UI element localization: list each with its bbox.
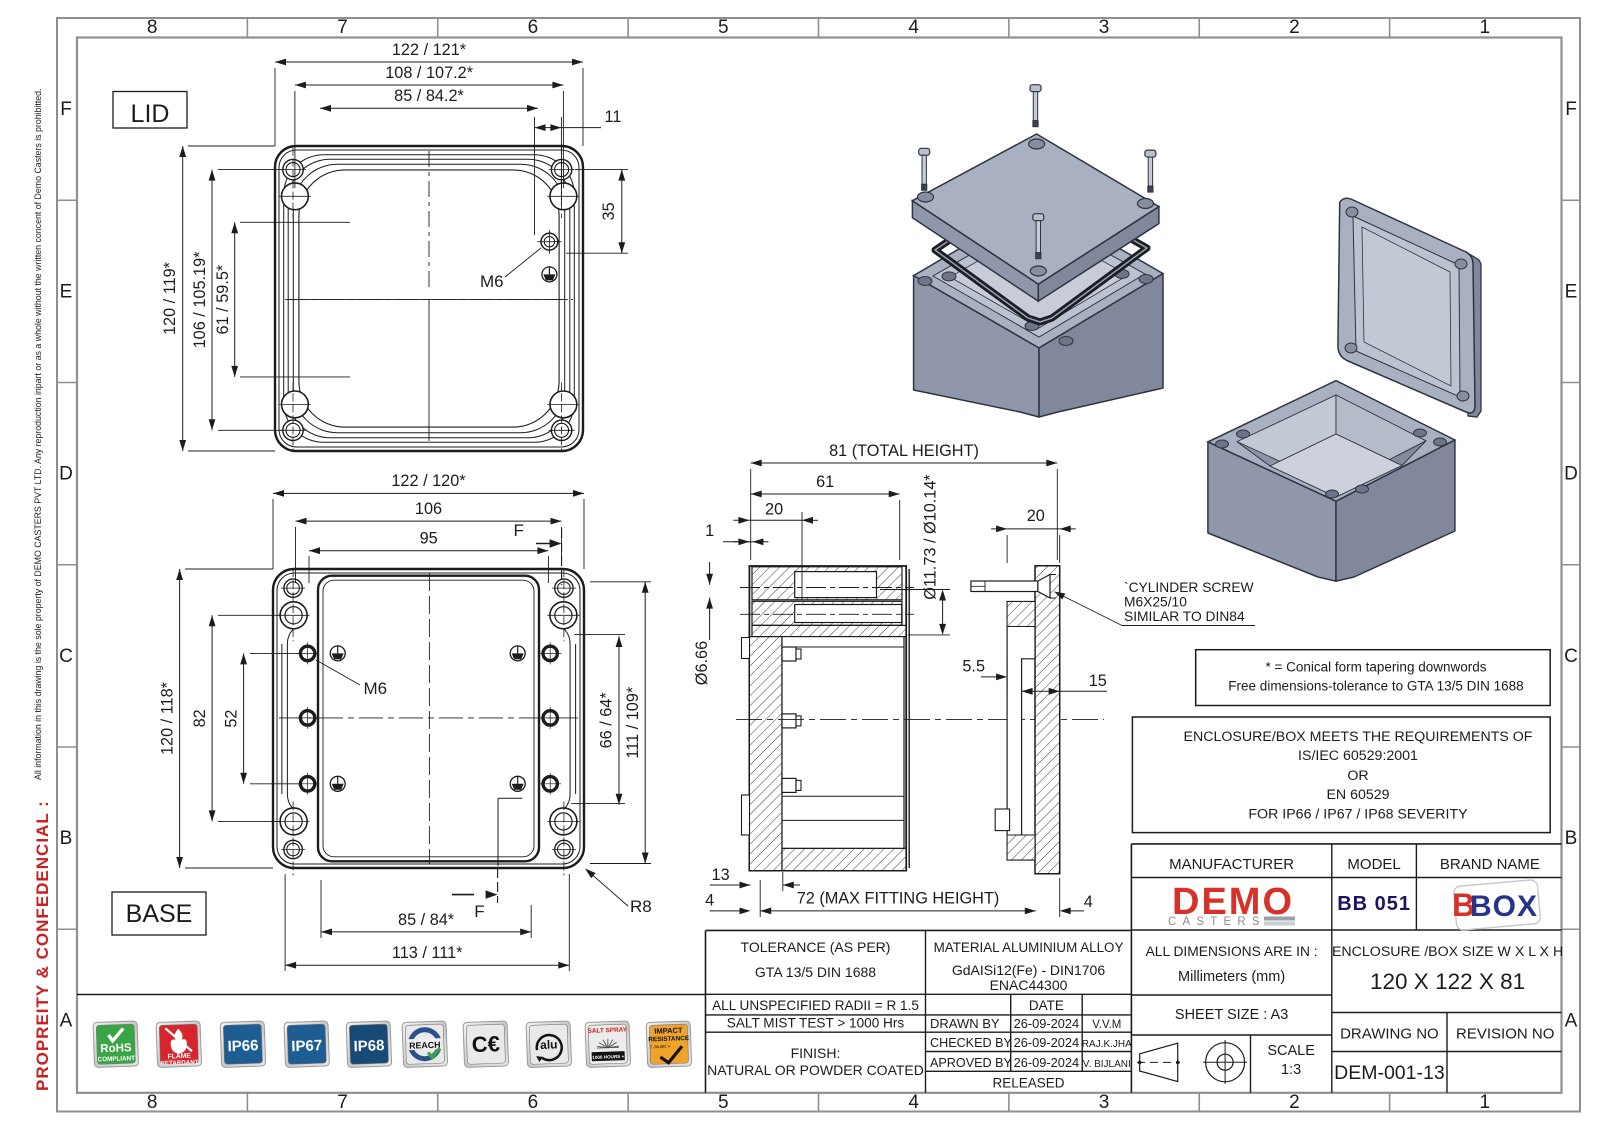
svg-text:CHECKED BY: CHECKED BY: [930, 1036, 1012, 1050]
svg-text:BASE: BASE: [126, 900, 193, 928]
svg-text:GTA 13/5 DIN 1688: GTA 13/5 DIN 1688: [755, 964, 876, 980]
svg-text:4: 4: [908, 17, 919, 38]
svg-text:7: 7: [337, 17, 348, 38]
svg-text:C: C: [59, 646, 73, 667]
svg-text:F: F: [1565, 99, 1577, 120]
svg-text:OR: OR: [1347, 768, 1368, 784]
svg-text:61: 61: [816, 473, 834, 491]
svg-text:E: E: [1565, 281, 1578, 302]
svg-text:4: 4: [705, 892, 714, 910]
svg-text:REVISION NO: REVISION NO: [1456, 1026, 1554, 1043]
svg-text:EN 60529: EN 60529: [1326, 787, 1389, 803]
svg-text:SCALE: SCALE: [1267, 1043, 1315, 1059]
svg-text:ALL UNSPECIFIED RADII = R 1.5: ALL UNSPECIFIED RADII = R 1.5: [712, 998, 919, 1013]
svg-text:6: 6: [528, 1092, 539, 1113]
svg-text:8: 8: [147, 17, 158, 38]
svg-text:DEM-001-13: DEM-001-13: [1334, 1062, 1445, 1084]
svg-text:V. BIJLANI: V. BIJLANI: [1083, 1059, 1131, 1070]
svg-text:3: 3: [1099, 17, 1110, 38]
svg-text:5: 5: [718, 17, 729, 38]
svg-text:IS/IEC 60529:2001: IS/IEC 60529:2001: [1298, 748, 1418, 764]
svg-text:Millimeters (mm): Millimeters (mm): [1178, 969, 1285, 985]
svg-text:7 Joules +: 7 Joules +: [650, 1044, 671, 1050]
svg-text:F: F: [474, 902, 484, 921]
svg-text:SHEET SIZE : A3: SHEET SIZE : A3: [1175, 1007, 1288, 1023]
svg-text:DATE: DATE: [1029, 998, 1064, 1013]
svg-text:8: 8: [147, 1092, 158, 1113]
svg-text:6: 6: [528, 17, 539, 38]
svg-text:RESISTANCE: RESISTANCE: [648, 1035, 690, 1043]
svg-text:4: 4: [1084, 893, 1093, 911]
svg-text:IMPACT: IMPACT: [654, 1026, 683, 1036]
svg-text:RETARDANT: RETARDANT: [160, 1059, 198, 1067]
svg-text:35: 35: [600, 202, 618, 220]
svg-text:Ø6.66: Ø6.66: [693, 641, 711, 685]
svg-text:120 X 122 X 81: 120 X 122 X 81: [1370, 969, 1525, 994]
svg-text:ENCLOSURE/BOX MEETS THE REQUIR: ENCLOSURE/BOX MEETS THE REQUIREMENTS OF: [1184, 729, 1533, 745]
svg-text:M6X25/10: M6X25/10: [1124, 595, 1187, 610]
svg-text:LID: LID: [131, 100, 170, 128]
svg-text:B: B: [60, 828, 73, 849]
svg-text:82: 82: [191, 709, 209, 727]
svg-text:66 / 64*: 66 / 64*: [598, 692, 616, 749]
svg-text:RELEASED: RELEASED: [992, 1076, 1064, 1091]
svg-text:2: 2: [1289, 17, 1300, 38]
svg-text:A: A: [60, 1010, 73, 1031]
svg-text:RAJ.K.JHA: RAJ.K.JHA: [1082, 1039, 1132, 1050]
svg-text:FINISH:: FINISH:: [791, 1045, 841, 1061]
svg-text:ENAC44300: ENAC44300: [990, 977, 1068, 993]
svg-text:ENCLOSURE /BOX SIZE W X L X H: ENCLOSURE /BOX SIZE W X L X H: [1332, 944, 1563, 960]
svg-text:122 / 121*: 122 / 121*: [392, 41, 467, 59]
svg-text:1: 1: [1480, 17, 1491, 38]
svg-text:NATURAL OR POWDER COATED: NATURAL OR POWDER COATED: [707, 1062, 924, 1078]
svg-text:C€: C€: [471, 1031, 500, 1057]
svg-text:1: 1: [705, 522, 714, 540]
svg-text:MATERIAL ALUMINIUM ALLOY: MATERIAL ALUMINIUM ALLOY: [934, 940, 1124, 955]
svg-text:85 / 84.2*: 85 / 84.2*: [394, 87, 464, 105]
svg-text:MANUFACTURER: MANUFACTURER: [1169, 856, 1294, 873]
svg-text:BB 051: BB 051: [1337, 893, 1411, 915]
svg-text:122 / 120*: 122 / 120*: [391, 472, 466, 490]
svg-text:7: 7: [337, 1092, 348, 1113]
svg-text:`CYLINDER SCREW: `CYLINDER SCREW: [1124, 580, 1254, 595]
svg-text:26-09-2024: 26-09-2024: [1014, 1035, 1079, 1050]
svg-text:5: 5: [718, 1092, 729, 1113]
svg-text:Free dimensions-tolerance to G: Free dimensions-tolerance to GTA 13/5 DI…: [1228, 678, 1523, 693]
svg-text:SIMILAR TO DIN84: SIMILAR TO DIN84: [1124, 609, 1245, 624]
svg-text:E: E: [60, 281, 73, 302]
svg-text:20: 20: [1027, 507, 1045, 525]
svg-text:113 / 111*: 113 / 111*: [392, 944, 463, 962]
svg-text:APROVED BY: APROVED BY: [930, 1056, 1012, 1070]
svg-text:4: 4: [908, 1092, 919, 1113]
svg-text:TOLERANCE (AS PER): TOLERANCE (AS PER): [741, 939, 891, 955]
svg-text:SALT SPRAY: SALT SPRAY: [588, 1026, 628, 1034]
svg-text:REACH: REACH: [409, 1040, 441, 1051]
svg-text:108 / 107.2*: 108 / 107.2*: [385, 64, 473, 82]
svg-text:IP68: IP68: [353, 1037, 384, 1055]
svg-text:DRAWN BY: DRAWN BY: [930, 1016, 1000, 1031]
svg-text:95: 95: [420, 530, 438, 548]
svg-text:1:3: 1:3: [1281, 1062, 1301, 1078]
svg-text:FOR IP66 / IP67 / IP68 SEVERIT: FOR IP66 / IP67 / IP68 SEVERITY: [1248, 806, 1468, 822]
svg-text:26-09-2024: 26-09-2024: [1014, 1016, 1079, 1031]
svg-text:RoHS: RoHS: [100, 1042, 132, 1055]
svg-text:COMPLIANT: COMPLIANT: [97, 1055, 135, 1063]
svg-text:106 / 105.19*: 106 / 105.19*: [191, 251, 209, 349]
svg-text:61 / 59.5*: 61 / 59.5*: [214, 264, 232, 334]
svg-text:R8: R8: [630, 897, 652, 916]
svg-text:V.V.M: V.V.M: [1092, 1019, 1121, 1031]
svg-text:20: 20: [765, 501, 783, 519]
svg-text:85 / 84*: 85 / 84*: [398, 911, 455, 929]
svg-text:72 (MAX FITTING HEIGHT): 72 (MAX FITTING HEIGHT): [797, 890, 1000, 908]
svg-text:All information in this drawin: All information in this drawing is the s…: [33, 88, 43, 780]
svg-text:11: 11: [605, 108, 622, 126]
svg-text:13: 13: [712, 866, 730, 884]
svg-text:MODEL: MODEL: [1347, 856, 1400, 873]
svg-text:D: D: [59, 464, 73, 485]
svg-text:120 / 118*: 120 / 118*: [158, 681, 176, 755]
svg-text:5.5: 5.5: [962, 657, 985, 675]
svg-text:120 / 119*: 120 / 119*: [161, 261, 179, 335]
svg-text:1: 1: [1480, 1092, 1491, 1113]
svg-text:ALL DIMENSIONS ARE IN :: ALL DIMENSIONS ARE IN :: [1146, 944, 1318, 959]
svg-text:IP66: IP66: [227, 1037, 258, 1055]
svg-text:GdAISi12(Fe) - DIN1706: GdAISi12(Fe) - DIN1706: [952, 962, 1105, 978]
svg-text:F: F: [514, 521, 524, 540]
svg-text:D: D: [1564, 464, 1578, 485]
svg-text:BRAND NAME: BRAND NAME: [1440, 856, 1540, 873]
svg-text:A: A: [1565, 1010, 1578, 1031]
svg-text:B: B: [1565, 828, 1578, 849]
svg-text:BOX: BOX: [1470, 890, 1538, 923]
svg-text:IP67: IP67: [291, 1037, 322, 1055]
svg-text:3: 3: [1099, 1092, 1110, 1113]
svg-text:M6: M6: [364, 679, 388, 698]
svg-text:2: 2: [1289, 1092, 1300, 1113]
svg-text:52: 52: [222, 710, 240, 728]
svg-text:26-09-2024: 26-09-2024: [1014, 1055, 1079, 1070]
svg-text:111 / 109*: 111 / 109*: [624, 686, 642, 758]
svg-text:CASTERS: CASTERS: [1168, 916, 1266, 928]
svg-text:PROPREITY & CONFEDENCIAL :: PROPREITY & CONFEDENCIAL :: [33, 800, 52, 1091]
svg-text:M6: M6: [480, 272, 504, 291]
svg-text:C: C: [1564, 646, 1578, 667]
svg-text:DRAWING NO: DRAWING NO: [1340, 1026, 1439, 1043]
svg-text:Ø11.73 / Ø10.14*: Ø11.73 / Ø10.14*: [922, 474, 940, 600]
svg-text:F: F: [60, 99, 72, 120]
svg-text:81 (TOTAL HEIGHT): 81 (TOTAL HEIGHT): [829, 442, 979, 460]
svg-text:106: 106: [415, 500, 442, 518]
svg-text:SALT MIST TEST > 1000 Hrs: SALT MIST TEST > 1000 Hrs: [727, 1016, 905, 1031]
svg-text:15: 15: [1089, 672, 1107, 690]
svg-text:alu: alu: [540, 1037, 558, 1052]
svg-text:* = Conical form tapering down: * = Conical form tapering downwords: [1266, 659, 1487, 674]
